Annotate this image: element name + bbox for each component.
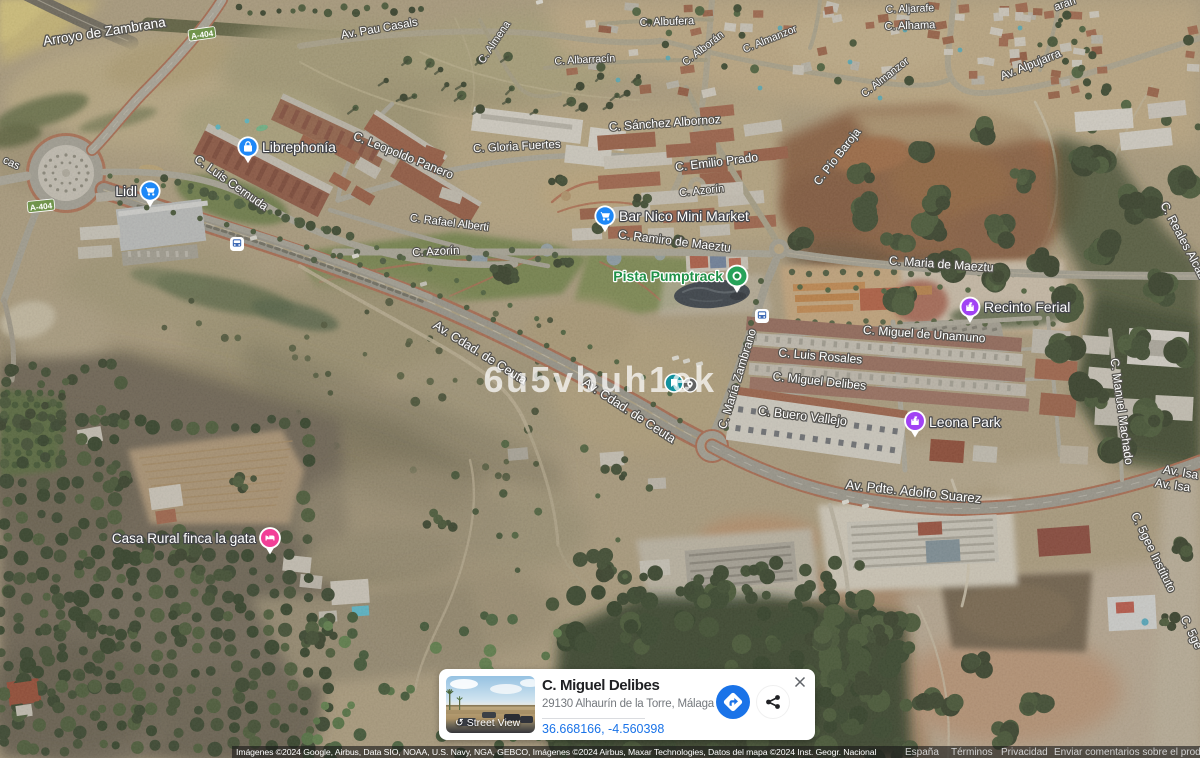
svg-text:Pista Pumptrack: Pista Pumptrack <box>613 268 723 284</box>
svg-text:6u5vbuh1ek: 6u5vbuh1ek <box>483 359 716 400</box>
svg-text:Recinto Ferial: Recinto Ferial <box>984 299 1070 315</box>
svg-text:Librephonía: Librephonía <box>262 139 336 155</box>
svg-text:C. Alhama: C. Alhama <box>884 19 936 33</box>
svg-text:C. Azorín: C. Azorín <box>412 245 460 259</box>
svg-text:C. Aljarafe: C. Aljarafe <box>885 2 934 16</box>
svg-text:C. Albufera: C. Albufera <box>639 15 695 29</box>
svg-text:Casa Rural finca la gata: Casa Rural finca la gata <box>112 531 257 546</box>
svg-text:Leona Park: Leona Park <box>929 414 1002 430</box>
svg-text:Bar Nico Mini Market: Bar Nico Mini Market <box>619 208 749 224</box>
svg-text:Lidl: Lidl <box>115 183 137 199</box>
